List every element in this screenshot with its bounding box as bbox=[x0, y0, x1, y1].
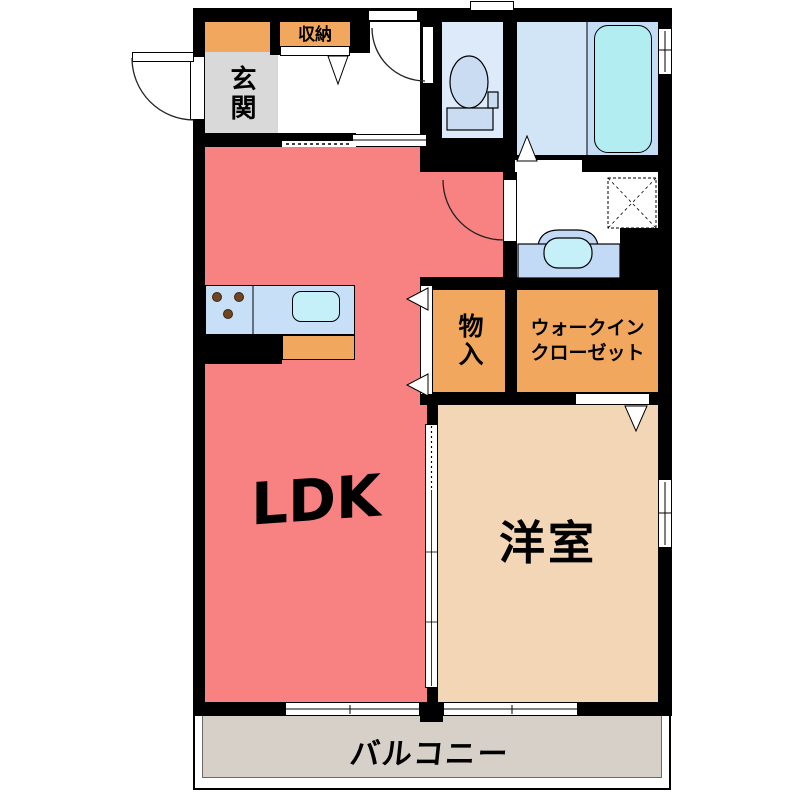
entrance-label: 玄関 bbox=[205, 52, 278, 135]
wic-label-line2: クローゼット bbox=[530, 341, 644, 366]
wall-basin-right bbox=[620, 228, 658, 280]
toilet-top-window bbox=[470, 1, 514, 11]
balcony-window-ldk bbox=[285, 702, 420, 716]
hall-step-strip bbox=[282, 141, 356, 147]
wic-label-line1: ウォークイン bbox=[530, 316, 644, 341]
floor-plan: 玄関 収納 LDK 物入 ウォークイン クローゼット 洋室 バルコニー bbox=[0, 0, 800, 800]
wall-partition-bottom bbox=[427, 688, 438, 703]
wall-balcony-post bbox=[420, 702, 443, 722]
front-door-leaf bbox=[132, 52, 194, 62]
wall-closet-divider bbox=[505, 290, 517, 392]
bathroom-side-window bbox=[658, 28, 672, 75]
bathroom-door-opening bbox=[515, 160, 582, 172]
hall-ldk-slider bbox=[352, 134, 427, 147]
toilet-door-arc bbox=[372, 28, 425, 81]
wall-above-closets bbox=[420, 277, 672, 290]
toilet-door-leaf bbox=[368, 10, 418, 21]
western-room-label: 洋室 bbox=[438, 485, 658, 595]
ldk-label: LDK bbox=[205, 427, 426, 573]
wall-entrance-bottom bbox=[205, 133, 282, 147]
wall-hall-bottom bbox=[282, 133, 356, 141]
balcony-label: バルコニー bbox=[193, 727, 666, 775]
wall-partition-top bbox=[427, 405, 438, 424]
storage-door bbox=[280, 46, 350, 56]
storage-door-triangle bbox=[328, 56, 348, 84]
washroom-door-opening bbox=[503, 179, 517, 242]
walk-in-closet-label: ウォークイン クローゼット bbox=[517, 290, 658, 392]
wall-right bbox=[658, 8, 672, 716]
wic-door-opening bbox=[575, 393, 650, 405]
wall-shoebox-storage bbox=[270, 8, 280, 55]
closet-door-strip bbox=[420, 285, 433, 395]
hall-storage-label: 収納 bbox=[280, 19, 350, 46]
balcony-window-western bbox=[443, 702, 578, 716]
wall-kitchen-block bbox=[205, 332, 282, 364]
wall-storage-right bbox=[350, 8, 370, 53]
toilet-door-opening bbox=[422, 26, 434, 84]
entrance-shoe-cabinet bbox=[205, 20, 270, 52]
ldk-western-slider bbox=[425, 424, 438, 688]
room-ldk-extension bbox=[427, 172, 503, 280]
western-side-window bbox=[658, 479, 672, 548]
room-ldk bbox=[205, 147, 427, 703]
kitchen-counter-orange bbox=[282, 335, 355, 360]
front-door-opening bbox=[190, 56, 205, 120]
bathtub-icon bbox=[594, 25, 652, 153]
storage-closet-label: 物入 bbox=[433, 290, 505, 392]
front-door-arc bbox=[132, 58, 194, 120]
sink-icon bbox=[292, 291, 340, 322]
room-toilet bbox=[442, 20, 503, 138]
